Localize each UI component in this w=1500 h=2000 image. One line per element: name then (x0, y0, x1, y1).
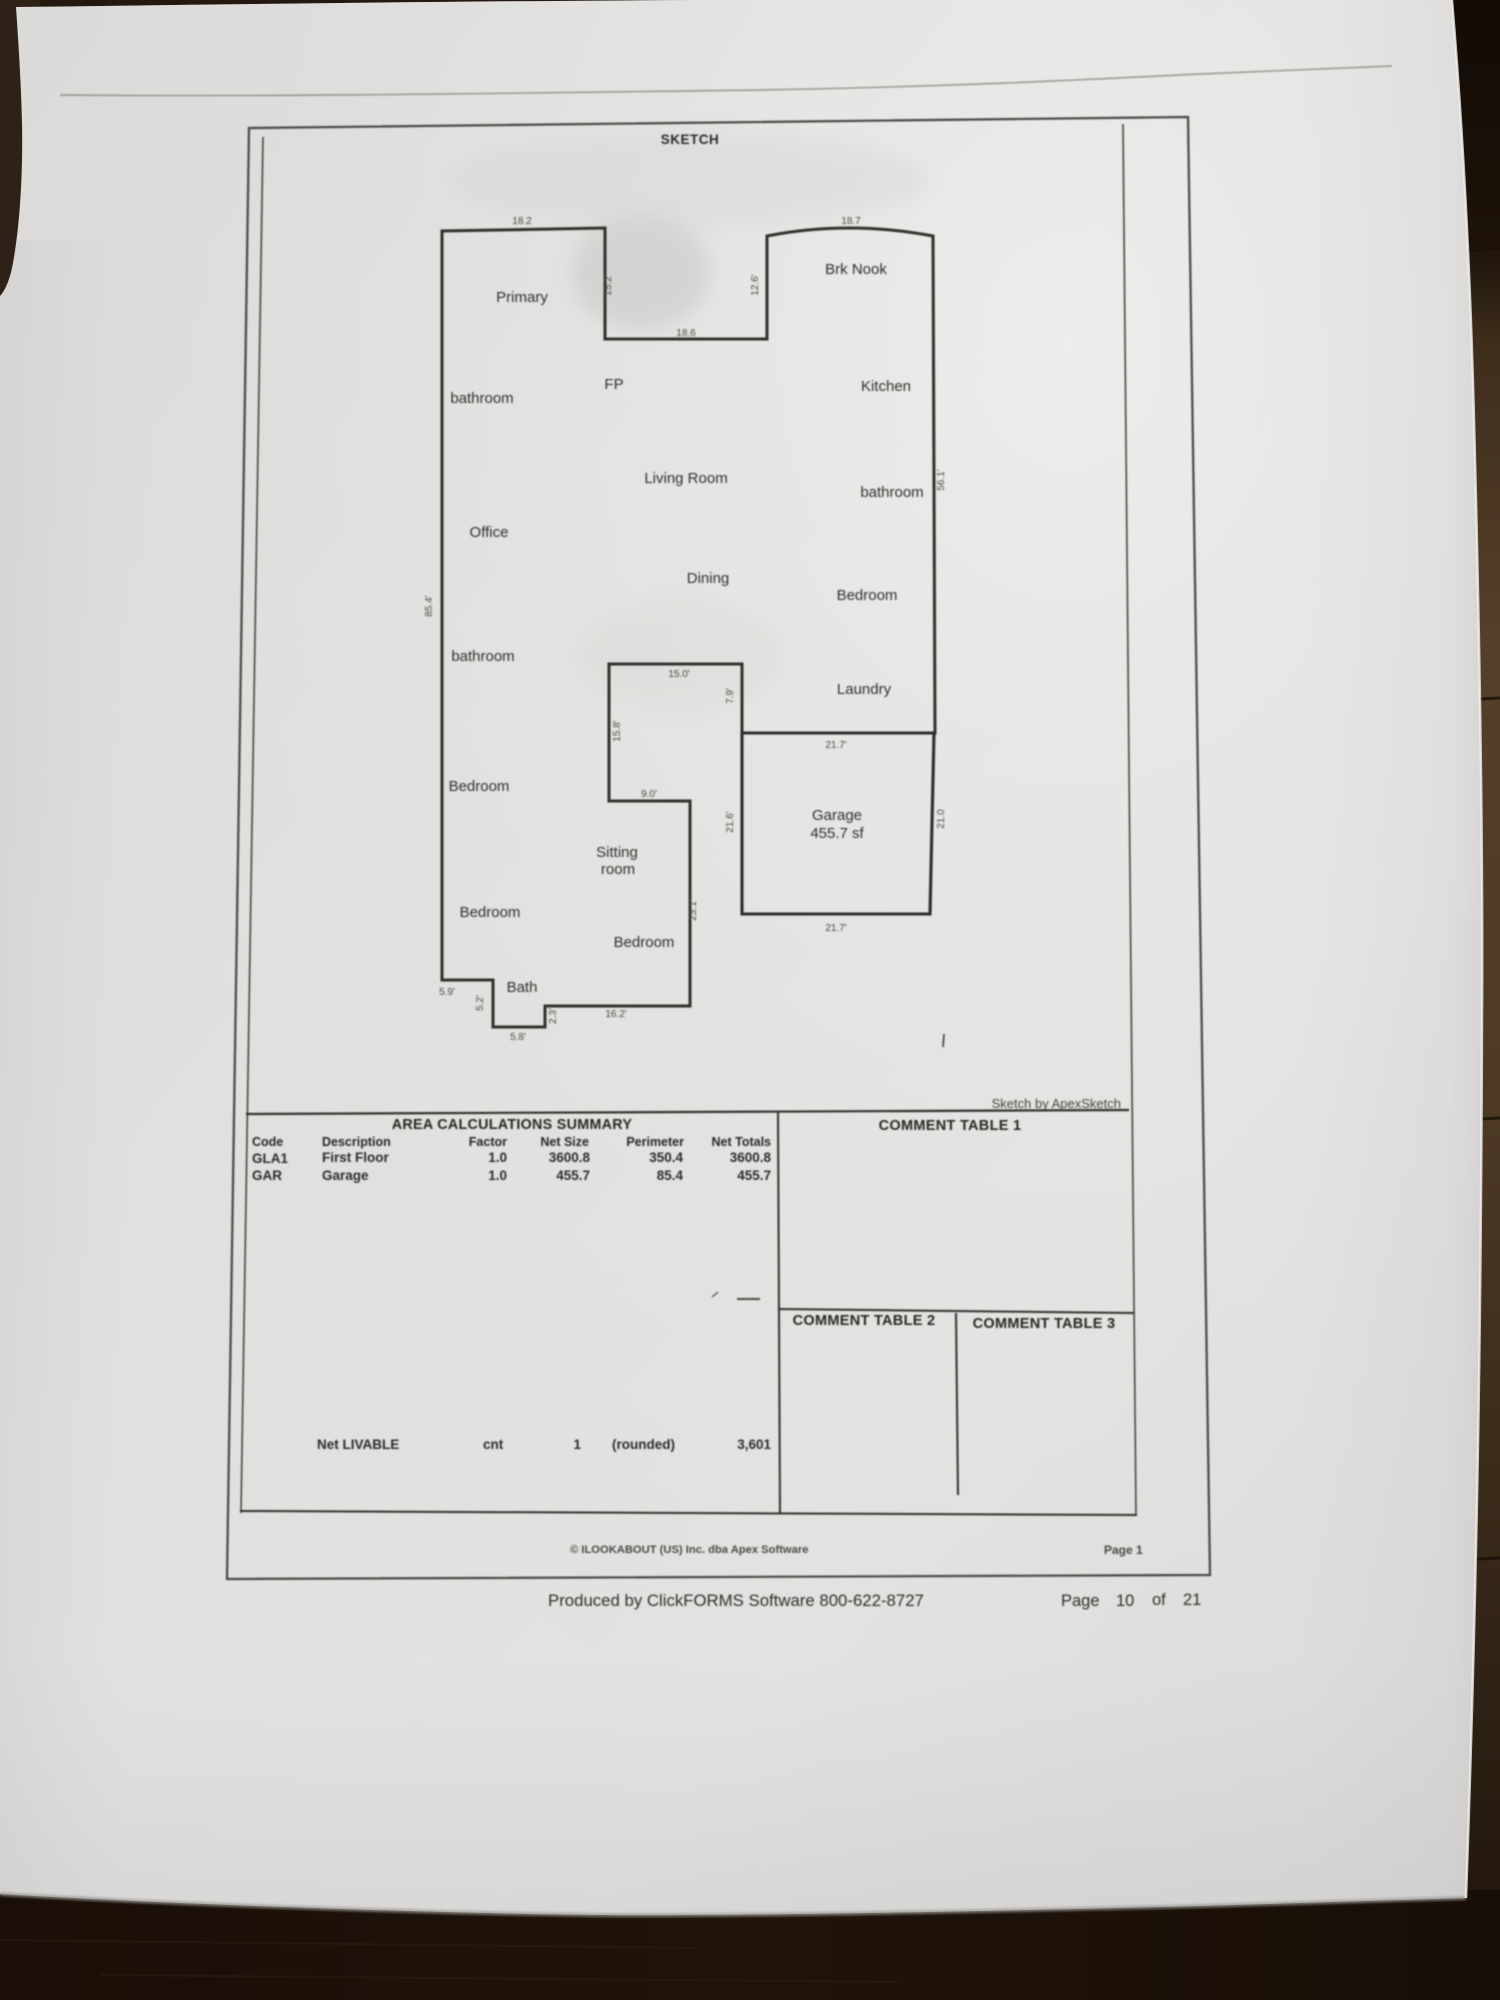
svg-text:18.2: 18.2 (512, 216, 532, 227)
svg-text:Page 1: Page 1 (1104, 1543, 1143, 1557)
svg-text:350.4: 350.4 (649, 1150, 683, 1165)
svg-text:Primary: Primary (496, 289, 548, 306)
svg-text:85.4: 85.4 (657, 1168, 684, 1183)
svg-text:GAR: GAR (252, 1168, 282, 1183)
svg-text:3,601: 3,601 (737, 1437, 771, 1452)
svg-text:bathroom: bathroom (860, 484, 923, 501)
svg-text:(rounded): (rounded) (612, 1437, 675, 1452)
svg-text:COMMENT TABLE 1: COMMENT TABLE 1 (879, 1118, 1022, 1134)
svg-text:18.6: 18.6 (676, 328, 696, 339)
svg-text:COMMENT TABLE 3: COMMENT TABLE 3 (973, 1316, 1116, 1332)
svg-text:3600.8: 3600.8 (730, 1150, 772, 1165)
svg-text:room: room (601, 861, 635, 878)
svg-text:2.3': 2.3' (548, 1008, 559, 1024)
svg-text:7.9': 7.9' (725, 688, 736, 704)
svg-text:Garage: Garage (812, 807, 862, 824)
svg-text:First Floor: First Floor (322, 1150, 389, 1165)
svg-text:5.9': 5.9' (439, 987, 455, 998)
svg-text:Brk Nook: Brk Nook (825, 261, 887, 278)
svg-text:of: of (1152, 1591, 1166, 1609)
svg-text:Factor: Factor (469, 1135, 507, 1149)
svg-text:21.7': 21.7' (825, 923, 846, 934)
svg-text:Bedroom: Bedroom (449, 778, 510, 795)
svg-text:5.2': 5.2' (475, 995, 486, 1011)
svg-text:10: 10 (1116, 1592, 1134, 1610)
svg-text:15.2': 15.2' (603, 274, 614, 295)
svg-text:Bedroom: Bedroom (614, 934, 675, 951)
svg-text:Description: Description (322, 1135, 391, 1149)
svg-text:AREA CALCULATIONS SUMMARY: AREA CALCULATIONS SUMMARY (392, 1117, 633, 1133)
svg-text:bathroom: bathroom (450, 390, 513, 407)
svg-text:85.4': 85.4' (424, 595, 435, 616)
svg-text:Net Totals: Net Totals (712, 1135, 772, 1149)
svg-text:Living Room: Living Room (644, 470, 727, 487)
svg-text:Garage: Garage (322, 1168, 369, 1183)
svg-text:15.8': 15.8' (612, 720, 623, 741)
svg-text:Net Size: Net Size (540, 1135, 589, 1149)
svg-text:SKETCH: SKETCH (661, 132, 720, 147)
svg-text:21.6': 21.6' (725, 811, 736, 832)
svg-text:Dining: Dining (687, 570, 730, 587)
svg-text:cnt: cnt (483, 1437, 504, 1452)
svg-text:COMMENT TABLE 2: COMMENT TABLE 2 (793, 1313, 936, 1329)
svg-text:21: 21 (1183, 1591, 1201, 1609)
svg-text:21.0: 21.0 (936, 809, 947, 829)
svg-text:Produced by ClickFORMS Softwar: Produced by ClickFORMS Software 800-622-… (548, 1591, 924, 1610)
svg-text:FP: FP (604, 376, 623, 393)
svg-text:Perimeter: Perimeter (626, 1135, 684, 1149)
svg-text:1: 1 (573, 1437, 581, 1452)
svg-text:Bedroom: Bedroom (460, 904, 521, 921)
svg-text:56.1': 56.1' (936, 469, 947, 490)
svg-text:5.8': 5.8' (510, 1032, 526, 1043)
svg-text:GLA1: GLA1 (252, 1151, 288, 1166)
svg-text:455.7: 455.7 (737, 1168, 771, 1183)
svg-text:3600.8: 3600.8 (549, 1150, 591, 1165)
svg-text:© ILOOKABOUT (US) Inc. dba Ape: © ILOOKABOUT (US) Inc. dba Apex Software (570, 1544, 808, 1556)
svg-text:Page: Page (1061, 1592, 1100, 1610)
svg-text:23.1': 23.1' (688, 899, 699, 920)
svg-text:Sketch by ApexSketch: Sketch by ApexSketch (992, 1096, 1121, 1111)
svg-text:Net LIVABLE: Net LIVABLE (317, 1437, 399, 1452)
svg-text:Bath: Bath (507, 979, 538, 996)
svg-text:Kitchen: Kitchen (861, 378, 911, 395)
svg-text:18.7: 18.7 (841, 216, 861, 227)
svg-text:Sitting: Sitting (596, 844, 638, 861)
svg-text:455.7 sf: 455.7 sf (810, 825, 864, 842)
svg-text:Bedroom: Bedroom (837, 587, 898, 604)
svg-text:1.0: 1.0 (488, 1150, 507, 1165)
svg-text:15.0': 15.0' (668, 669, 689, 680)
svg-text:Office: Office (470, 524, 509, 541)
svg-text:bathroom: bathroom (451, 648, 514, 665)
svg-text:16.2': 16.2' (605, 1009, 626, 1020)
svg-text:Laundry: Laundry (837, 681, 892, 698)
svg-text:1.0: 1.0 (488, 1168, 507, 1183)
svg-text:9.0': 9.0' (641, 789, 657, 800)
svg-text:12.6': 12.6' (750, 274, 761, 295)
svg-text:Code: Code (252, 1135, 283, 1149)
svg-text:455.7: 455.7 (556, 1168, 590, 1183)
svg-text:21.7': 21.7' (825, 740, 846, 751)
